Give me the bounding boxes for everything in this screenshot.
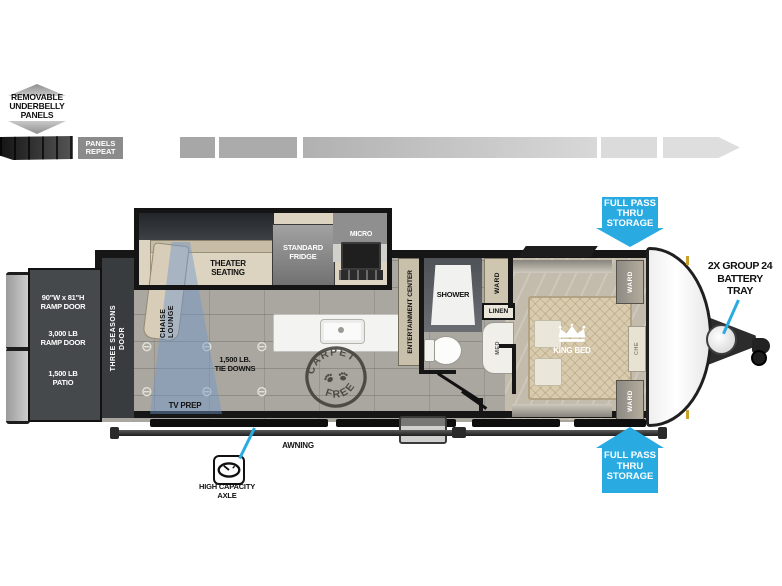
underbelly-label: REMOVABLE UNDERBELLY PANELS <box>0 93 74 120</box>
storage-bottom-label: FULL PASS THRU STORAGE <box>596 451 664 483</box>
underbelly-arrow-down-icon <box>8 121 66 134</box>
panels-repeat-badge: PANELS REPEAT <box>78 137 123 159</box>
panel-segment-3 <box>303 137 597 158</box>
shower-label: SHOWER <box>424 290 482 299</box>
fridge-line-2: FRIDGE <box>272 252 334 261</box>
panel-segment-2 <box>219 137 297 158</box>
bedroom-wall-stub-v <box>512 344 516 394</box>
battery-tray-label: 2X GROUP 24 BATTERY TRAY <box>698 260 782 298</box>
awning-label: AWNING <box>268 441 328 450</box>
arrow-top-head-icon <box>596 228 664 247</box>
fridge-line-1: STANDARD <box>272 243 334 252</box>
awning-rail-segment <box>472 419 560 427</box>
theater-line-2: SEATING <box>193 268 263 277</box>
storage-top-line-3: STORAGE <box>596 219 664 229</box>
bedroom-ward-top-label: WARD <box>627 271 634 293</box>
entertainment-center-label: ENTERTAINMENT CENTER <box>407 270 414 354</box>
cap-marker-bottom <box>686 410 689 419</box>
tv-prep-label: TV PREP <box>160 401 210 410</box>
bedside-chest: CHE <box>628 326 646 372</box>
storage-bottom-line-3: STORAGE <box>596 472 664 483</box>
tongue-jack-wheel <box>751 350 767 366</box>
awning-pole <box>116 430 662 436</box>
linen-label: LINEN <box>489 308 509 315</box>
battery-line-2: BATTERY <box>698 273 782 286</box>
ramp-size-line-2: RAMP DOOR <box>28 303 98 312</box>
ramp-flap-lower <box>6 348 30 424</box>
tie-down-anchor-icon: ⊖ <box>256 339 268 353</box>
axle-scale-icon <box>213 455 245 485</box>
fridge-label: STANDARD FRIDGE <box>272 243 334 261</box>
bath-ward-label: WARD <box>494 272 501 294</box>
roof-storage-mark <box>518 246 598 257</box>
patio-line-2: PATIO <box>28 379 98 388</box>
king-bed-label: KING BED <box>540 346 604 355</box>
patio-label: 1,500 LB PATIO <box>28 370 98 387</box>
chaise-lounge-label: CHAISE LOUNGE <box>150 256 184 338</box>
theater-seating-label: THEATER SEATING <box>193 259 263 277</box>
crown-icon <box>556 324 588 343</box>
battery-line-3: TRAY <box>698 285 782 298</box>
battery-tray <box>706 324 737 355</box>
awning-rail-segment <box>574 419 646 427</box>
tie-downs-line-1: 1,500 LB. <box>202 355 268 364</box>
underbelly-line-3: PANELS <box>0 111 74 120</box>
bath-wardrobe: WARD <box>484 258 510 308</box>
cap-marker-top <box>686 256 689 265</box>
battery-line-1: 2X GROUP 24 <box>698 260 782 273</box>
bedroom-ward-bottom: WARD <box>616 380 644 422</box>
bath-vanity: MED <box>482 322 514 374</box>
chaise-label-col2: LOUNGE <box>168 256 175 338</box>
ramp-size-label: 90"W x 81"H RAMP DOOR <box>28 294 98 311</box>
tie-down-anchor-icon: ⊖ <box>141 384 153 398</box>
tie-down-anchor-icon: ⊖ <box>256 384 268 398</box>
three-seasons-label-col1: THREE SEASONS <box>110 305 117 371</box>
sink-faucet-icon <box>338 327 344 333</box>
theater-line-1: THEATER <box>193 259 263 268</box>
tie-downs-label: 1,500 LB. TIE DOWNS <box>202 355 268 373</box>
ramp-weight-line-2: RAMP DOOR <box>28 339 98 348</box>
bedroom-overhead-top <box>512 260 612 273</box>
ramp-flap-upper <box>6 272 30 350</box>
panel-segment-1 <box>180 137 215 158</box>
panels-repeat-line-2: REPEAT <box>78 148 123 157</box>
ramp-weight-label: 3,000 LB RAMP DOOR <box>28 330 98 347</box>
tie-down-anchor-icon: ⊖ <box>141 339 153 353</box>
bedroom-ward-top: WARD <box>616 260 644 304</box>
panel-arrow-icon <box>663 137 740 158</box>
bed-pillow-bottom <box>534 358 562 386</box>
toilet-tank <box>424 339 435 362</box>
panel-segment-4 <box>601 137 657 158</box>
bedroom-overhead-bottom <box>512 404 612 417</box>
three-seasons-door: THREE SEASONS DOOR <box>102 258 134 418</box>
arrow-bottom-head-icon <box>596 427 664 448</box>
pass-thru-arrow-top: FULL PASS THRU STORAGE <box>596 197 664 247</box>
bath-left-wall <box>419 258 424 374</box>
awning-bracket-left <box>110 427 119 439</box>
axle-label: HIGH CAPACITY AXLE <box>193 483 261 500</box>
axle-line-2: AXLE <box>193 492 261 501</box>
bedroom-wall-upper <box>508 258 513 308</box>
paw-print-icon <box>323 372 335 384</box>
tie-downs-line-2: TIE DOWNS <box>202 364 268 373</box>
storage-bottom-line-1: FULL PASS <box>596 451 664 462</box>
three-seasons-label-col2: DOOR <box>119 327 126 350</box>
storage-top-label: FULL PASS THRU STORAGE <box>596 199 664 229</box>
floorplan-canvas: REMOVABLE UNDERBELLY PANELS PANELS REPEA… <box>0 0 782 586</box>
chest-label: CHE <box>634 342 640 355</box>
awning-bracket-mid <box>452 427 466 438</box>
chaise-label-col1: CHAISE <box>160 256 167 338</box>
micro-label: MICRO <box>333 231 389 238</box>
pass-thru-arrow-bottom: FULL PASS THRU STORAGE <box>596 427 664 493</box>
underbelly-panel-strip <box>0 136 73 160</box>
paw-print-icon <box>339 372 348 380</box>
bedroom-ward-bottom-label: WARD <box>627 390 634 412</box>
awning-rail-segment <box>150 419 328 427</box>
